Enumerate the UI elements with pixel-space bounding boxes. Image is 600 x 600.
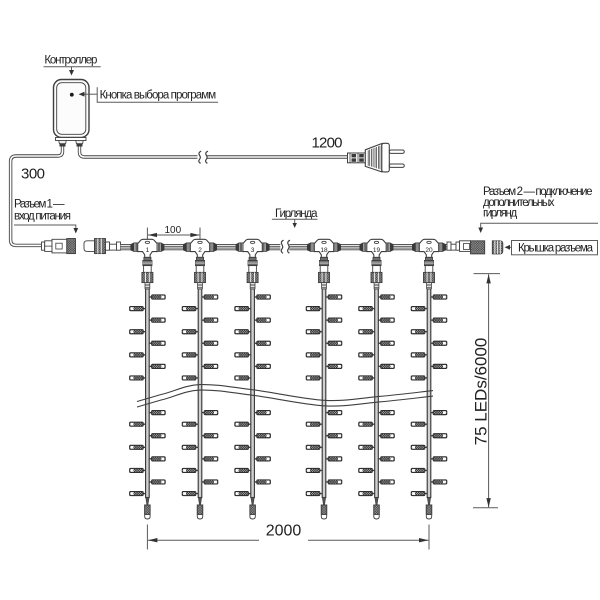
svg-text:Крышка разъема: Крышка разъема: [518, 243, 594, 255]
svg-text:300: 300: [21, 166, 45, 183]
svg-text:Кнопка выбора программ: Кнопка выбора программ: [100, 90, 217, 102]
svg-text:19: 19: [373, 247, 381, 254]
svg-text:Гирлянда: Гирлянда: [275, 208, 318, 220]
svg-text:Контроллер: Контроллер: [44, 55, 97, 67]
svg-text:3: 3: [251, 247, 255, 254]
svg-text:75 LEDs/6000: 75 LEDs/6000: [472, 338, 491, 446]
svg-text:гирлянд: гирлянд: [483, 208, 517, 220]
svg-text:20: 20: [425, 247, 433, 254]
svg-text:вход питания: вход питания: [14, 211, 71, 223]
svg-text:1: 1: [146, 247, 150, 254]
svg-text:18: 18: [320, 247, 328, 254]
svg-text:Разъем 1 —: Разъем 1 —: [14, 199, 65, 211]
svg-text:100: 100: [165, 225, 182, 236]
svg-text:1200: 1200: [312, 135, 343, 152]
svg-text:2000: 2000: [266, 523, 302, 540]
svg-text:2: 2: [198, 247, 202, 254]
